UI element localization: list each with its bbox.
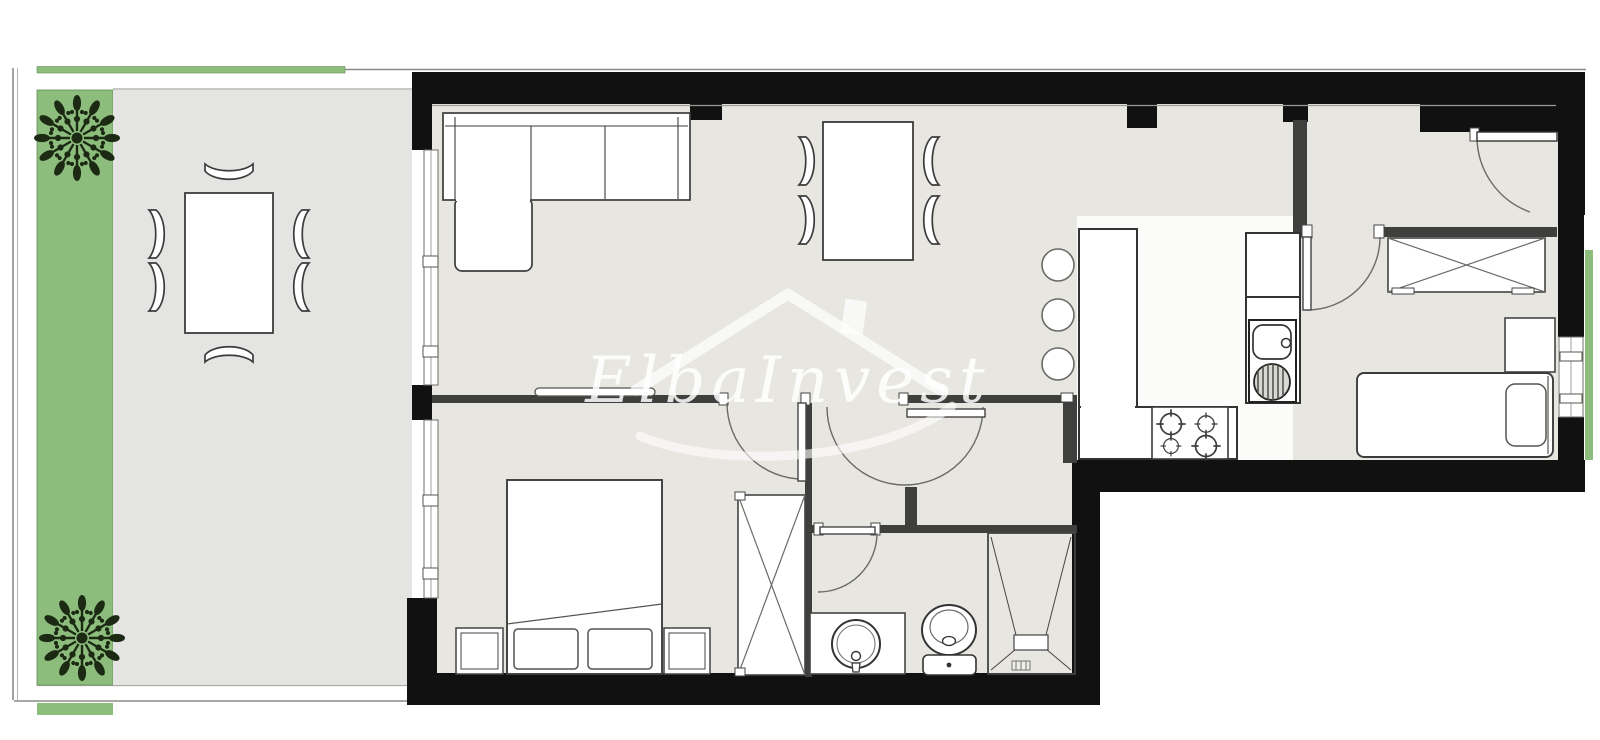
bar-stool [1042, 299, 1074, 331]
bar-stools [1042, 249, 1074, 380]
bedroom-window-right [1559, 337, 1583, 417]
hall-wardrobe [1388, 238, 1545, 294]
terrace-floor [113, 90, 412, 685]
kitchen-sink [1249, 320, 1296, 402]
pillow [1506, 384, 1546, 446]
vanity-washbasin [810, 613, 905, 674]
pillow [514, 629, 578, 669]
faucet-icon [1282, 339, 1291, 348]
double-bed [507, 480, 662, 674]
bar-stool [1042, 249, 1074, 281]
basin-drain-icon [852, 652, 861, 661]
shower-tray-icon [1014, 635, 1048, 650]
toilet [922, 605, 976, 675]
peninsula-counter [1079, 229, 1137, 409]
desk [1505, 318, 1555, 372]
stove [1152, 407, 1228, 461]
terrace-window-upper [423, 150, 438, 385]
shower-head-icon [1012, 661, 1030, 670]
bar-stool [1042, 348, 1074, 380]
single-bed [1357, 373, 1553, 457]
watermark-chimney-icon [841, 299, 868, 336]
fridge-cabinet [1246, 233, 1300, 297]
watermark-text: ElbaInvest [584, 344, 990, 418]
floor-plan-svg: ElbaInvest [0, 0, 1600, 740]
pillow [588, 629, 652, 669]
drainer-icon [1254, 364, 1290, 400]
dining-table [823, 122, 913, 260]
bedroom-closet [735, 492, 805, 676]
terrace-table [185, 193, 273, 333]
terrace-window-lower [423, 420, 438, 598]
garden-strip-right [1585, 250, 1593, 460]
floor-plan-page: ElbaInvest [0, 0, 1600, 740]
basin-faucet-icon [852, 663, 860, 672]
